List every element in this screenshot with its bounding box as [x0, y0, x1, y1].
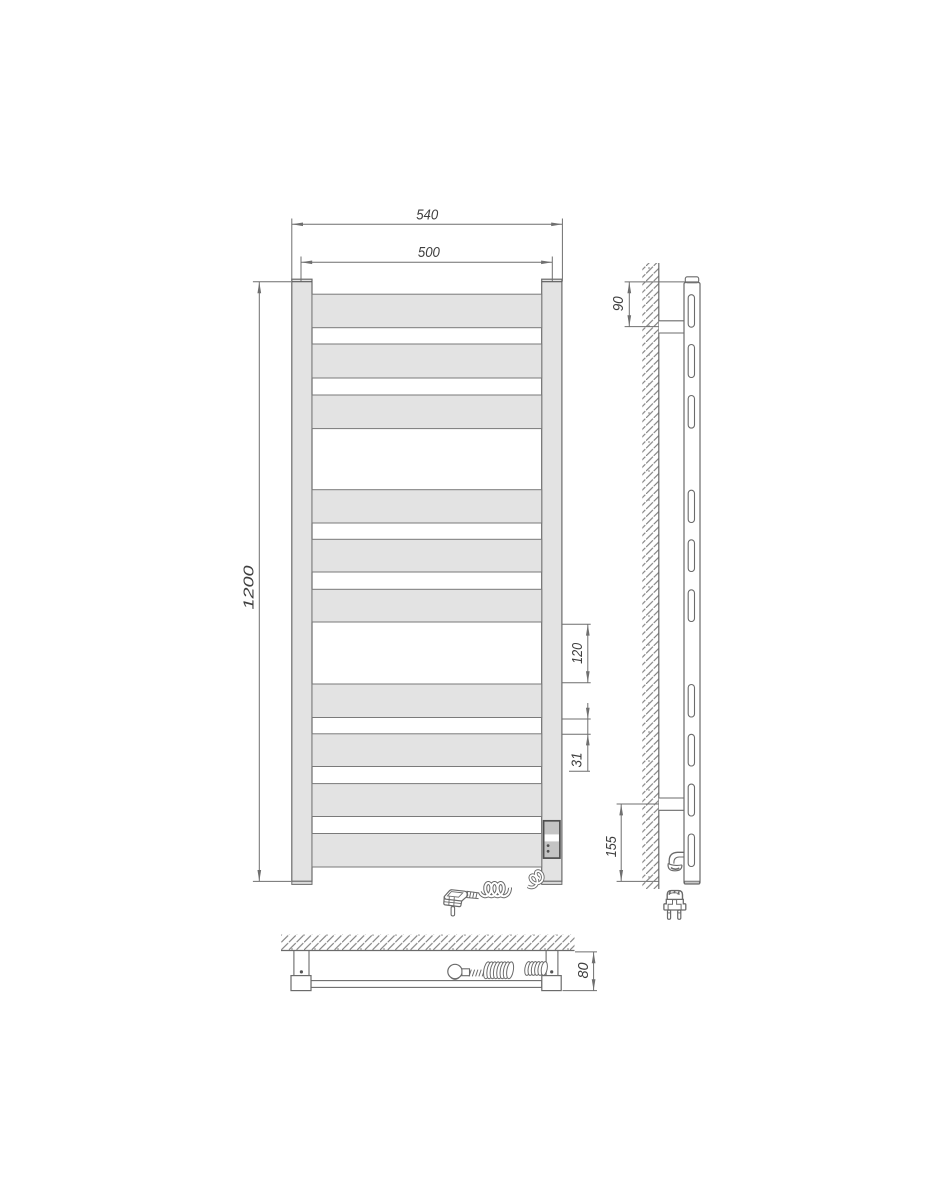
svg-text:80: 80	[575, 962, 592, 979]
svg-text:120: 120	[569, 642, 586, 663]
svg-text:1200: 1200	[240, 565, 257, 610]
svg-text:90: 90	[610, 296, 627, 311]
svg-text:540: 540	[416, 206, 438, 223]
svg-text:155: 155	[603, 836, 620, 857]
svg-text:500: 500	[418, 244, 440, 261]
svg-text:31: 31	[568, 753, 585, 768]
